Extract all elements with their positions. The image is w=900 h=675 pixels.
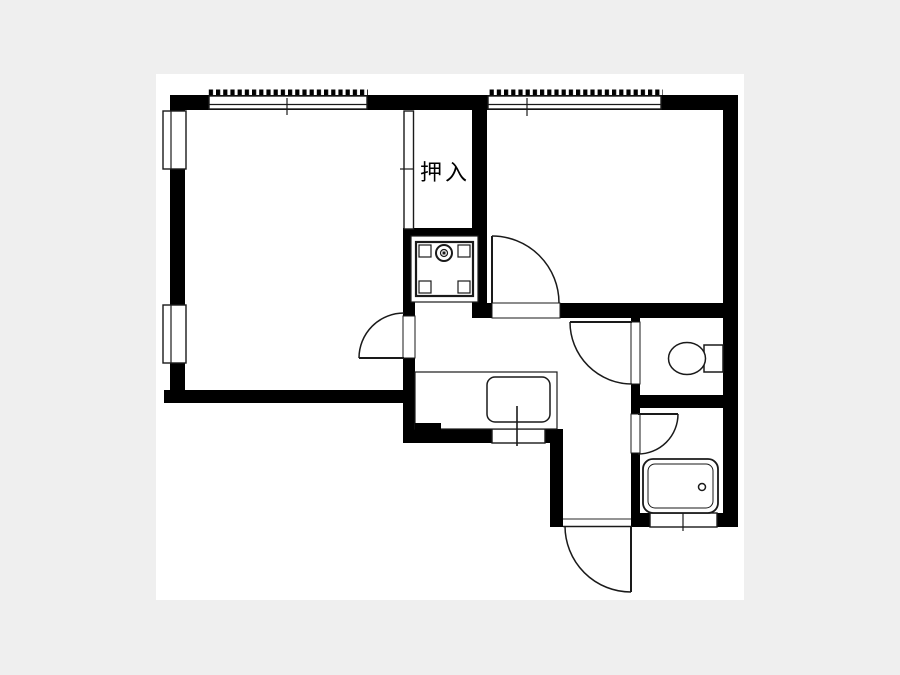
window-top-right-ticks bbox=[487, 90, 663, 96]
wall-hall-top bbox=[560, 303, 738, 318]
washer-pan-corner-tl bbox=[419, 245, 431, 257]
wall-entry-right-post bbox=[631, 518, 651, 527]
washer-faucet-dot bbox=[443, 252, 446, 255]
opening-bath-door bbox=[631, 414, 640, 453]
wall-bath-left bbox=[631, 453, 640, 520]
window-kitchen bbox=[492, 429, 545, 443]
wall-entry-left bbox=[550, 433, 563, 527]
window-top-right-frame bbox=[488, 96, 661, 109]
window-left-lower bbox=[163, 305, 186, 363]
opening-leftroom-door bbox=[403, 316, 415, 358]
washer-pan-corner-tr bbox=[458, 245, 470, 257]
kitchen-sink bbox=[487, 377, 550, 422]
wall-leftroom-bottom bbox=[164, 390, 415, 403]
wall-toilet-bottom bbox=[631, 395, 738, 408]
floorplan-svg bbox=[0, 0, 900, 675]
toilet-tank bbox=[704, 345, 723, 372]
wall-door-post bbox=[477, 303, 492, 318]
wall-kitchen-bottom bbox=[405, 429, 493, 443]
bathtub-drain bbox=[699, 484, 706, 491]
window-kitchen-frame bbox=[492, 429, 545, 443]
wall-bath-bottom-right bbox=[716, 513, 738, 527]
toilet-bowl bbox=[669, 343, 706, 375]
floorplan-page: 押入 bbox=[0, 0, 900, 675]
window-top-left-frame bbox=[209, 96, 367, 109]
washer-pan-corner-br bbox=[458, 281, 470, 293]
washer-pan-corner-bl bbox=[419, 281, 431, 293]
closet-sliding-door-frame bbox=[404, 111, 414, 229]
opening-toilet-door bbox=[631, 322, 640, 384]
opening-rightroom-door bbox=[492, 303, 560, 318]
wall-kitchen-step bbox=[415, 423, 441, 431]
window-left-upper bbox=[163, 111, 186, 169]
closet-label: 押入 bbox=[419, 158, 471, 188]
window-left-upper-frame bbox=[163, 111, 186, 169]
window-left-lower-frame bbox=[163, 305, 186, 363]
window-top-left-ticks bbox=[208, 90, 368, 96]
wall-right bbox=[723, 95, 738, 527]
